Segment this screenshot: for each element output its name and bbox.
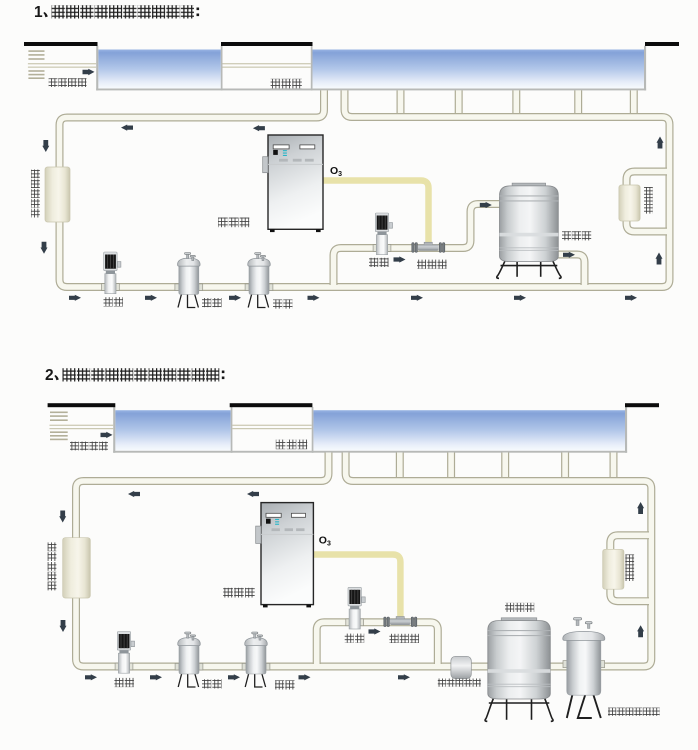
svg-text:1: 1 xyxy=(34,4,43,21)
svg-text:2: 2 xyxy=(45,367,54,384)
